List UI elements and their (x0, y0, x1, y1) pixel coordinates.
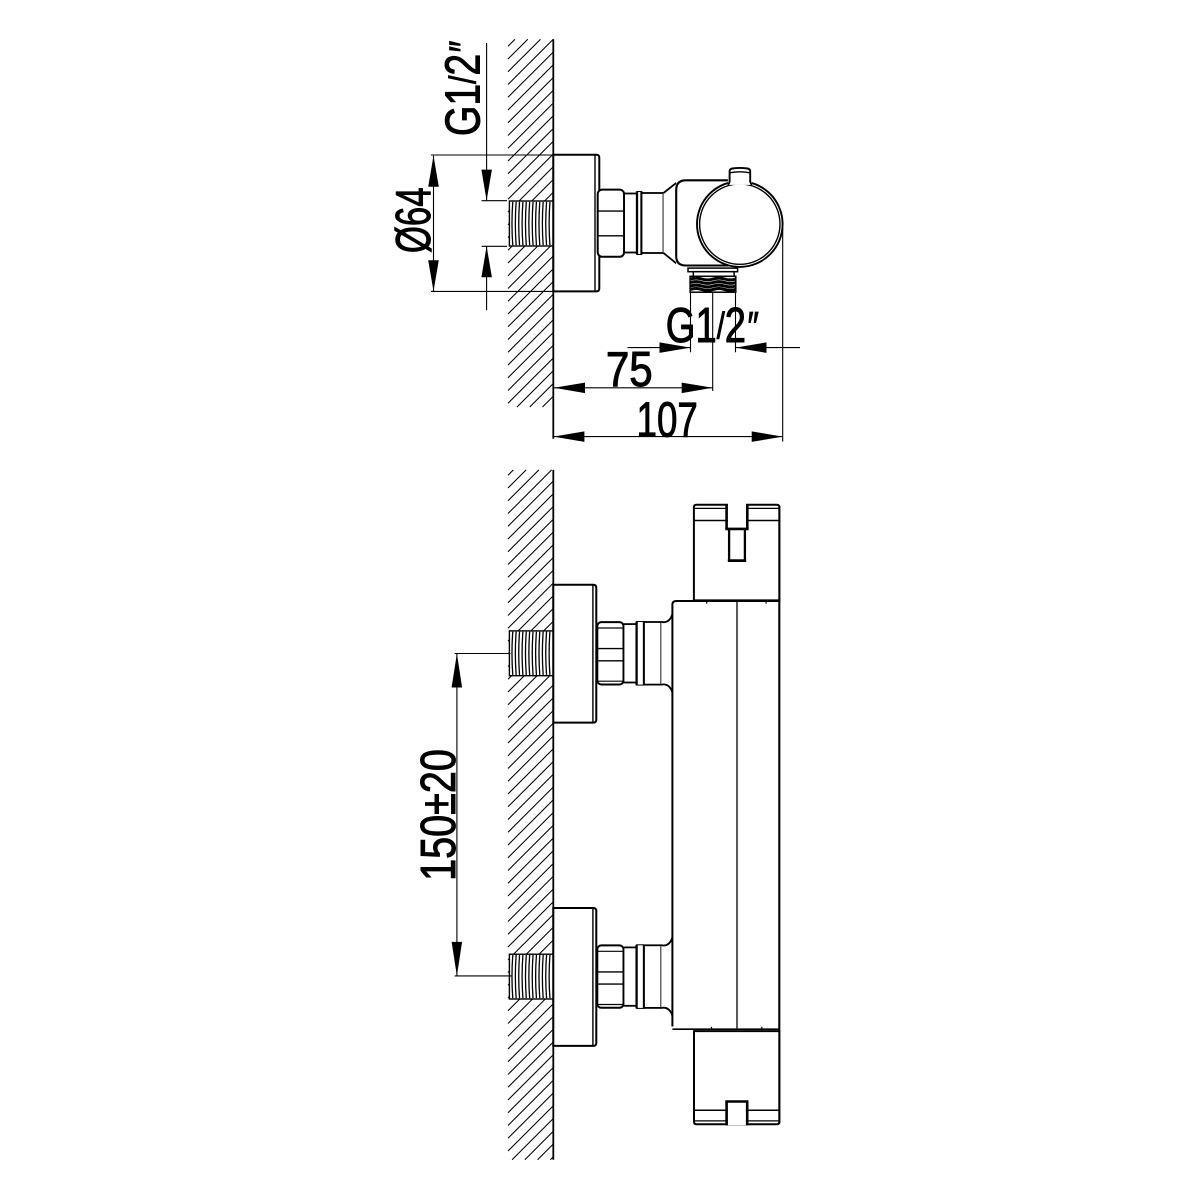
svg-text:G1/2″: G1/2″ (437, 41, 491, 137)
svg-text:G1/2″: G1/2″ (666, 299, 759, 354)
svg-text:107: 107 (637, 394, 698, 448)
svg-text:Ø64: Ø64 (387, 187, 441, 253)
svg-text:75: 75 (606, 342, 653, 397)
svg-text:150±20: 150±20 (412, 749, 466, 881)
